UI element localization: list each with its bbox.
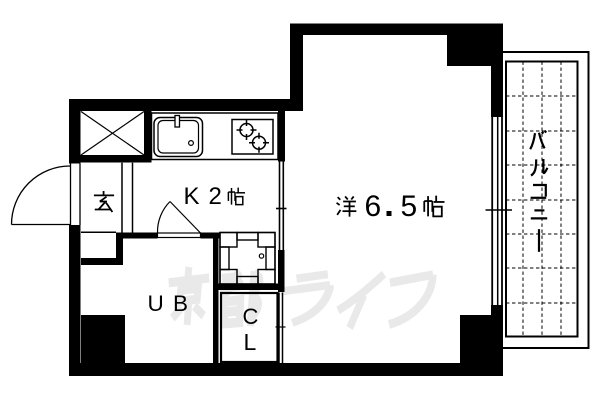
svg-text:L: L xyxy=(244,329,257,355)
svg-text:6: 6 xyxy=(365,190,382,223)
svg-text:5: 5 xyxy=(401,190,418,223)
svg-text:K: K xyxy=(184,183,200,210)
svg-text:B: B xyxy=(173,291,188,316)
svg-text:2: 2 xyxy=(209,183,222,210)
svg-text:U: U xyxy=(148,291,164,316)
svg-text:C: C xyxy=(243,304,259,329)
